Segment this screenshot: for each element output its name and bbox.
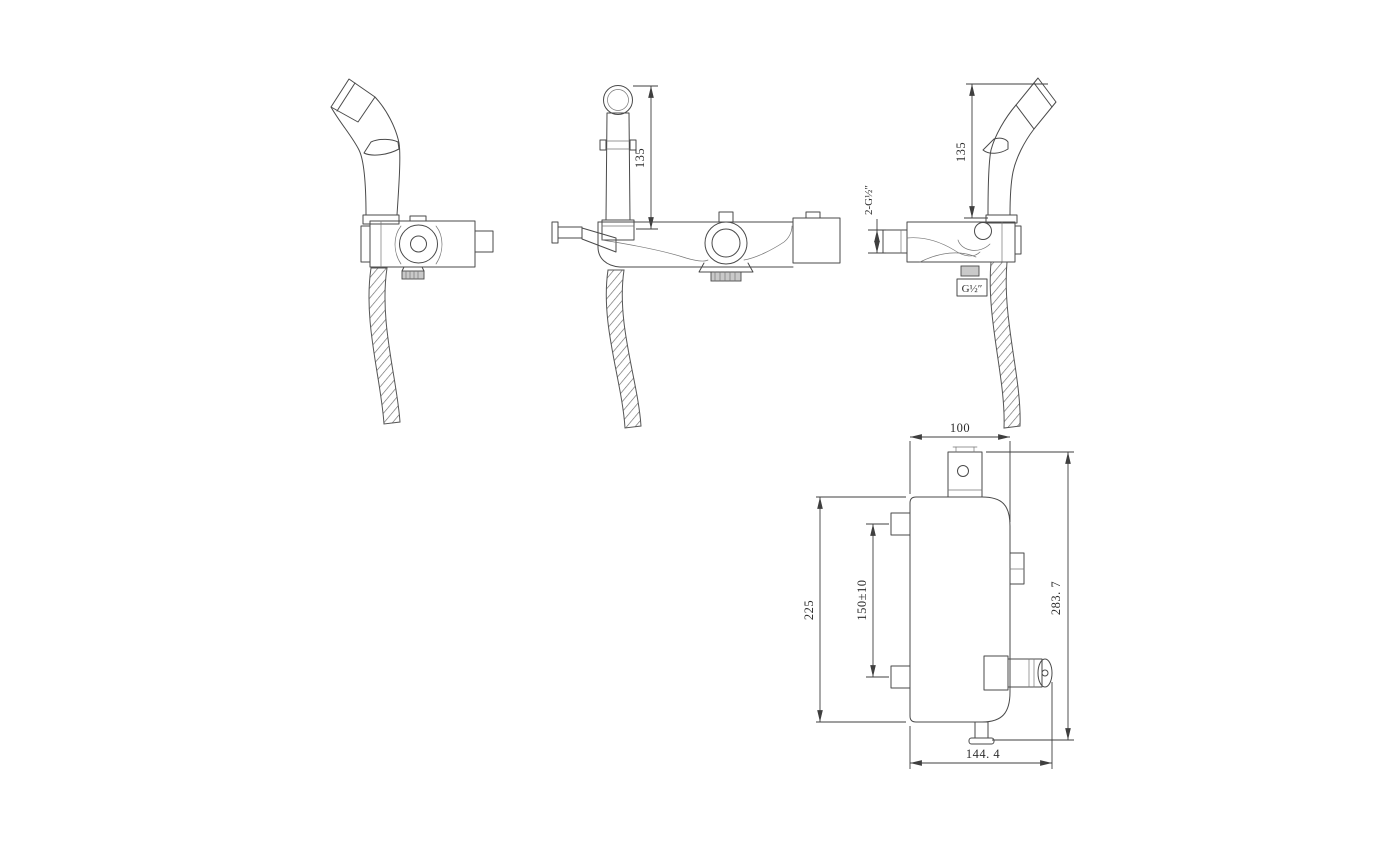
wall-pin-plate [552,222,558,243]
dim-label-overall-width: 144. 4 [966,747,1001,761]
side-plate-right [1015,226,1021,254]
wall-plate [361,226,370,262]
sprayer-nozzle-cap-line-right [1034,83,1052,107]
shower-hose-front [606,270,641,428]
dimension-top-bracket-width: 100 [910,421,1010,522]
top-body-outline [910,497,1010,722]
end-cap-front [793,218,840,263]
top-tab [410,216,426,221]
stem-flange [969,738,994,744]
body-contour-left [602,240,708,261]
side-knob [975,223,992,240]
dim-label-body-height: 225 [802,600,816,620]
control-knob-top-view [984,656,1052,690]
knob-base [984,656,1008,690]
clamp-stub-top [891,513,910,535]
knob-end-center [1042,670,1048,676]
sprayer-head-face [608,90,629,111]
knob-end-cap [1038,659,1052,687]
wall-pin-shaft [558,227,582,238]
front-knob-inner [712,229,740,257]
knob-housing-arc-right [436,226,442,264]
dimension-top-body-height: 225 [802,497,906,722]
hand-sprayer-front [600,86,636,241]
nut-flare [402,267,424,271]
outlet-nut [402,271,424,279]
sprayer-body-left-edge [331,107,366,215]
sprayer-trigger-lever [364,139,399,155]
handle-tab-left [600,140,606,150]
view-top: 100 225 150±10 283. 7 144. 4 [802,421,1074,769]
dimension-top-hole-spacing: 150±10 [855,524,889,677]
dim-label-bracket-width: 100 [950,421,970,435]
side-tab [1010,553,1024,584]
view-side-right: 135 2-G½″ G½″ [863,78,1056,428]
body-contour-right [744,226,792,260]
mixer-body-front [552,212,840,281]
shower-hose [369,268,400,424]
shower-hose-right [990,262,1020,428]
inlet-stub [883,230,907,253]
hand-sprayer-side-left [331,79,400,224]
dim-label-inlet-thread: 2-G½″ [863,185,875,215]
dim-label-side-sprayer-height: 135 [954,142,968,162]
dimension-top-overall-width: 144. 4 [910,682,1052,769]
body-contour-b [958,240,990,250]
stem-shaft [975,722,988,738]
knob-cylinder [1008,659,1042,687]
label-outlet-thread: G½″ [957,279,987,296]
bidet-shower-technical-drawing: 135 [0,0,1400,850]
outlet-stub-shaded [961,266,979,276]
bottom-stem [969,722,994,744]
hand-sprayer-side-right [983,78,1056,223]
knob-top-notch [719,212,733,222]
dimension-top-overall-height: 283. 7 [986,452,1074,740]
sprayer-body-right-edge-right [1010,129,1034,215]
knob-housing-arc-left [395,226,401,264]
dim-label-overall-height: 283. 7 [1049,581,1063,615]
bracket-hole [958,466,969,477]
dimension-side-sprayer-height: 135 [954,84,1048,218]
sprayer-nozzle-cap-line [337,83,355,111]
dimension-front-sprayer-height: 135 [633,86,658,229]
body-contour-c [920,253,976,262]
dim-label-front-sprayer-height: 135 [633,148,647,168]
sprayer-holder-socket [602,220,634,240]
side-tab-block [1010,553,1024,584]
view-front: 135 [552,86,840,429]
mixer-body-right [907,222,1015,262]
control-knob-inner [411,236,427,252]
end-cap-tab [806,212,820,218]
sprayer-body-left-edge-right [988,105,1016,215]
front-knob-outer [705,222,747,264]
control-knob-outer [400,225,438,263]
dim-label-hole-spacing: 150±10 [855,579,869,620]
front-outlet-nut [711,272,741,281]
dim-label-outlet-thread: G½″ [962,283,983,295]
view-side-left [331,79,493,424]
mixer-body [370,221,475,267]
sprayer-body-right-edge [375,97,400,215]
technical-drawing-page: 135 [0,0,1400,850]
top-mount-bracket [948,447,982,497]
end-cap [475,231,493,252]
body-contour-a [907,238,980,256]
sprayer-trigger-lever-right [983,138,1008,153]
sprayer-handle [606,113,630,220]
clamp-stub-bottom [891,666,910,688]
